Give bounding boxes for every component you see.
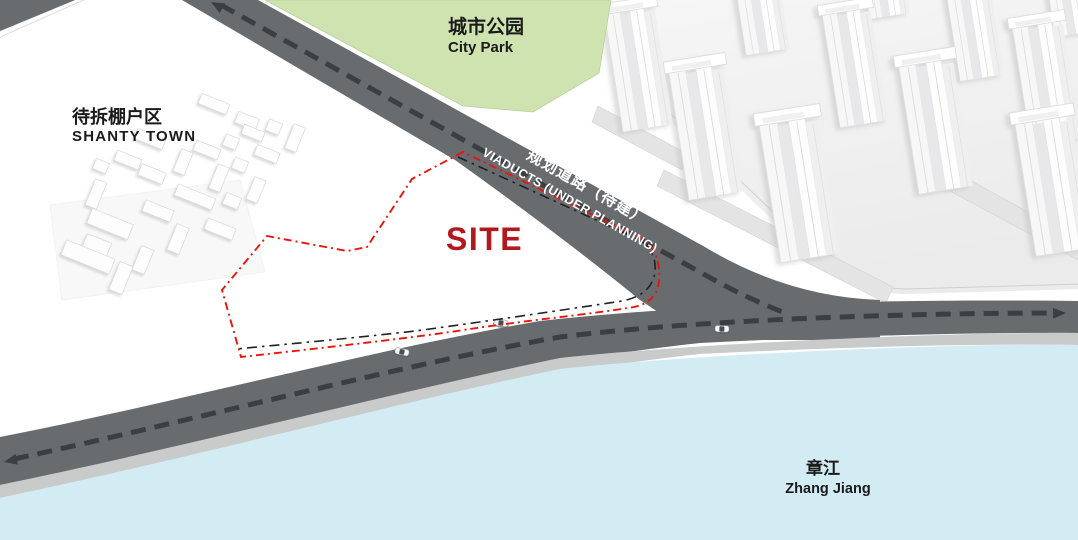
site-label: SITE — [446, 221, 523, 257]
shanty-town-label-en: SHANTY TOWN — [72, 128, 196, 145]
river-label-en: Zhang Jiang — [785, 481, 870, 497]
city-park-label-en: City Park — [448, 39, 514, 56]
shanty-building — [222, 134, 239, 150]
shanty-building — [138, 164, 167, 185]
shanty-building — [173, 149, 193, 176]
shanty-building — [92, 158, 109, 173]
shanty-building — [198, 93, 230, 114]
shanty-building — [254, 144, 280, 163]
site-plan-map: SITE 城市公园 City Park 待拆棚户区 SHANTY TOWN 章江… — [0, 0, 1078, 540]
shanty-building — [114, 150, 142, 170]
city-park-label-zh: 城市公园 — [448, 15, 524, 38]
site-plan-canvas: SITE 城市公园 City Park 待拆棚户区 SHANTY TOWN 章江… — [0, 0, 1078, 540]
shanty-building — [193, 140, 221, 160]
shanty-building — [285, 124, 306, 153]
shanty-town-label-zh: 待拆棚户区 — [72, 106, 162, 127]
corner-road — [0, 0, 80, 32]
shanty-building — [231, 157, 248, 173]
shanty-building — [265, 119, 282, 135]
shanty-building — [246, 177, 266, 204]
river-label-zh: 章江 — [806, 458, 840, 478]
